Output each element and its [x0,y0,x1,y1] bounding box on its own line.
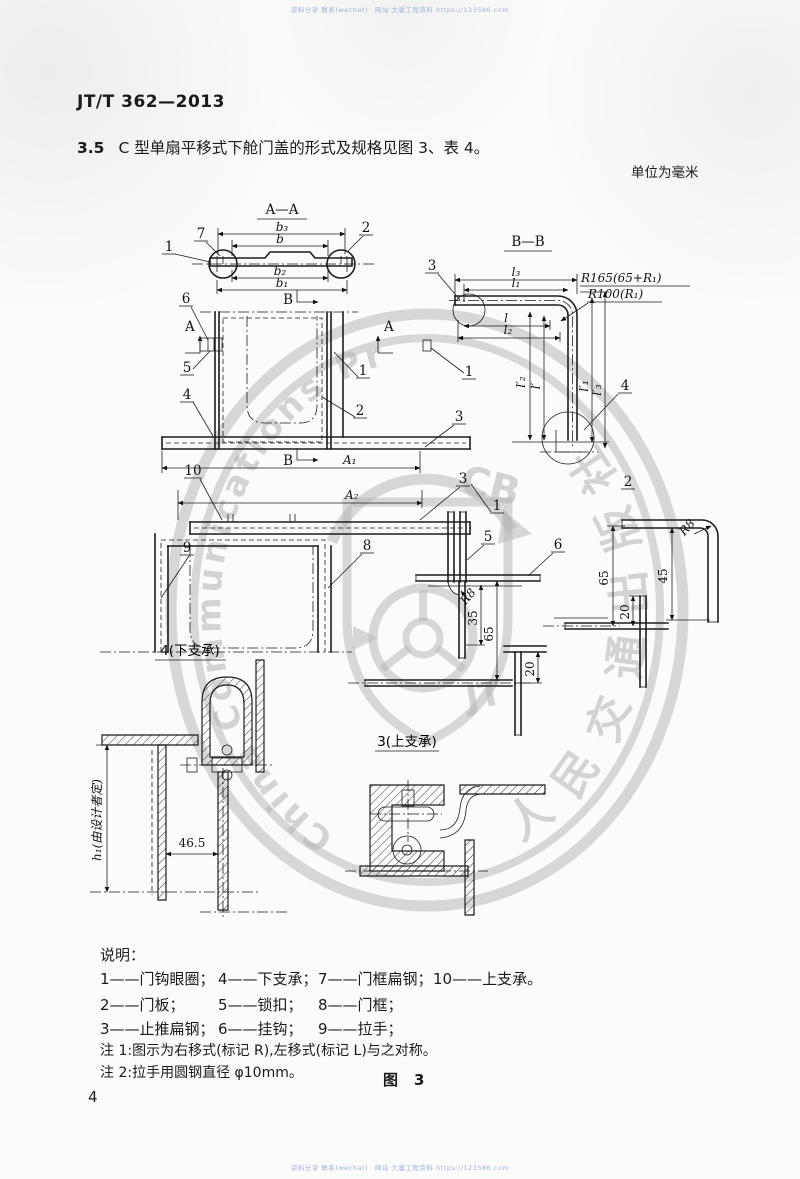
legend-row-2: 2——门板； 5——锁扣； 8——门框； [100,994,185,1015]
callout-6: 6 [554,537,563,553]
dim-lp: l′ [529,382,543,389]
callout-3: 3 [459,471,468,487]
stamp-wheel-spoke [382,648,409,669]
callout-5: 5 [484,529,493,545]
legend-item-8: 8——门框； [318,994,403,1015]
legend-note-2: 注 2:拉手用圆钢直径 φ10mm。 [100,1062,303,1082]
callout-3: 3 [428,258,437,274]
callout-10: 10 [184,463,201,479]
document-page: 资料分享·联系(wechat) 网站·大量工程资料 https://123586… [0,0,800,1179]
dim-l1: l₁ [512,276,521,290]
callout-1: 1 [359,363,368,379]
callout-4: 4 [183,387,192,403]
legend-item-6: 6——挂钩； [218,1018,303,1039]
section-marker-b-bottom: B [283,453,293,469]
dim-20: 20 [523,661,537,676]
dim-a2: A₂ [344,488,359,502]
dim-65: 65 [482,626,496,641]
figure-caption-number: 3 [414,1071,424,1089]
callout-9: 9 [183,540,192,556]
scan-watermark-line-bottom: 资料分享·联系(wechat) 网站·大量工程资料 https://123586… [0,1162,800,1172]
clause-text: C 型单扇平移式下舱门盖的形式及规格见图 3、表 4。 [118,139,489,157]
legend-item-4: 4——下支承； [218,968,318,989]
dim-b: b [276,232,284,246]
callout-2: 2 [362,220,371,236]
callout-2: 2 [624,474,633,490]
clause-3-5: 3.5C 型单扇平移式下舱门盖的形式及规格见图 3、表 4。 [77,136,489,158]
stamp-wheel-spoke [437,648,464,669]
stamp-swoosh-arrowhead [498,510,532,544]
legend-item-5: 5——锁扣； [218,994,303,1015]
section-b-b-title: B—B [511,234,544,250]
callout-3: 3 [455,409,464,425]
callout-1: 1 [465,364,474,380]
section-a-a-title: A—A [265,202,299,218]
attach-plate [256,660,264,772]
dim-h1: h₁(由设计者定) [90,779,104,861]
dim-lp3: l′₃ [590,384,604,396]
figure-3-drawing: China Communications Press 人民交通出版社 CB JT… [60,190,770,935]
legend-item-1: 1——门钩眼圈； [100,970,215,988]
caption-lower-support: 4(下支承) [160,643,220,659]
callout-4: 4 [621,378,630,394]
legend-row-1: 1——门钩眼圈； 4——下支承； 7——门框扁钢； 10——上支承。 [100,968,215,989]
dim-r100: R100(R₁) [587,287,643,301]
dim-a1: A₁ [342,453,356,467]
legend-item-2: 2——门板； [100,996,185,1014]
dim-b1: b₁ [276,276,289,290]
callout-8: 8 [363,538,372,554]
dim-l2: l₂ [504,323,513,337]
legend-item-9: 9——拉手； [318,1018,403,1039]
callout-7: 7 [197,226,206,242]
callout-2: 2 [356,403,365,419]
legend-item-3: 3——止推扁钢； [100,1020,215,1038]
scan-watermark-line-top: 资料分享·联系(wechat) 网站·大量工程资料 https://123586… [0,4,800,14]
callout-1: 1 [165,239,174,255]
callout-5: 5 [183,360,192,376]
clause-number: 3.5 [77,139,104,157]
deck-plate [102,735,198,745]
base-plate [360,866,468,876]
standard-number: JT/T 362—2013 [77,92,225,112]
dim-lp2: l′₂ [514,376,528,388]
page-number: 4 [88,1088,98,1106]
callout-1: 1 [493,498,502,514]
legend-item-7: 7——门框扁钢； [318,968,433,989]
dim-lp1: l′₁ [577,380,591,391]
dim-20: 20 [618,604,632,619]
caption-upper-support: 3(上支承) [377,734,437,750]
section-marker-a-left: A [184,319,195,335]
dim-35: 35 [466,610,480,625]
legend-title: 说明： [100,944,145,965]
stamp-wheel-hub [406,621,440,655]
section-a-a: A—A b₃ b b₂ b₁ 7 1 [162,202,376,294]
legend-row-3: 3——止推扁钢； 6——挂钩； 9——拉手； [100,1018,215,1039]
legend-item-10: 10——上支承。 [433,968,542,989]
section-marker-b-top: B [283,292,293,308]
dim-65: 65 [597,570,611,585]
wall-plate [158,745,166,900]
callout-6: 6 [182,291,191,307]
right-vertical-plate [465,840,474,915]
dim-45: 45 [656,568,670,583]
dim-46-5: 46.5 [179,836,206,850]
dim-r165: R165(65+R₁) [580,271,662,285]
legend-note-1: 注 1:图示为右移式(标记 R),左移式(标记 L)与之对称。 [100,1040,437,1060]
top-right-plate [460,785,545,794]
support-housing [370,785,444,871]
figure-caption-label: 图 [383,1071,398,1089]
figure-caption: 图3 [383,1069,424,1090]
section-marker-a-right: A [383,319,394,335]
unit-note: 单位为毫米 [631,161,699,181]
